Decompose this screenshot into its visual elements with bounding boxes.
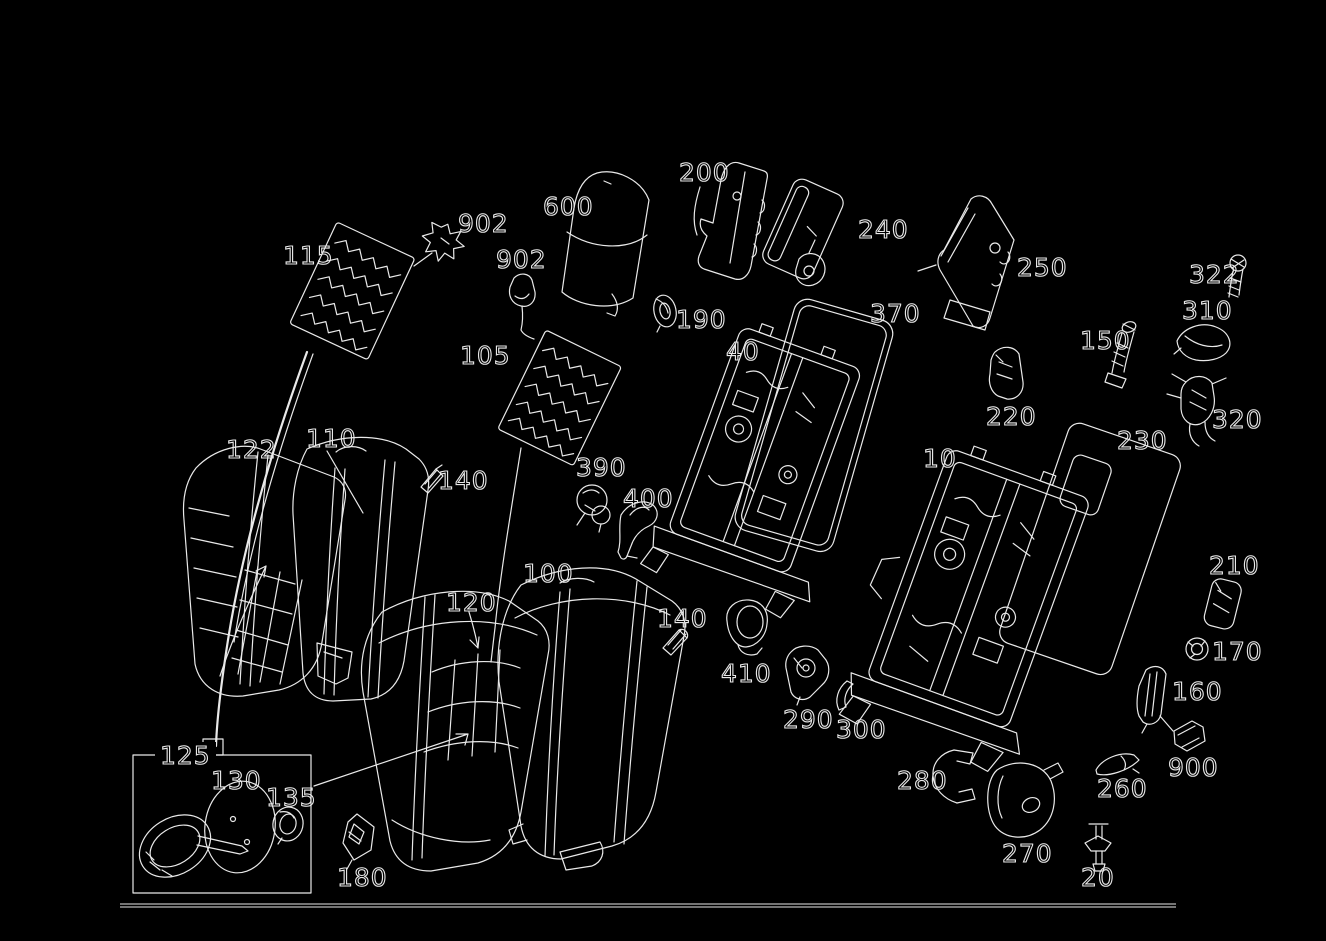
part-label-902-lower: 902 [496, 246, 547, 274]
part-label-240: 240 [858, 216, 909, 244]
part-label-40: 40 [726, 338, 760, 366]
part-label-902-upper: 902 [458, 210, 509, 238]
part-label-170: 170 [1212, 638, 1263, 666]
part-label-125: 125 [155, 742, 216, 770]
part-label-180: 180 [337, 864, 388, 892]
parts-diagram: 1159029026002002402503223101503201903704… [0, 0, 1326, 941]
part-label-322: 322 [1189, 261, 1240, 289]
part-label-210: 210 [1209, 552, 1260, 580]
part-label-400: 400 [623, 485, 674, 513]
part-label-200: 200 [679, 159, 730, 187]
part-label-260: 260 [1097, 775, 1148, 803]
part-label-220: 220 [986, 403, 1037, 431]
part-label-140-lower: 140 [657, 605, 708, 633]
part-label-120: 120 [446, 589, 497, 617]
part-label-160: 160 [1172, 678, 1223, 706]
part-label-600: 600 [543, 193, 594, 221]
part-label-410: 410 [721, 660, 772, 688]
part-label-250: 250 [1017, 254, 1068, 282]
part-label-370: 370 [870, 300, 921, 328]
part-label-320: 320 [1212, 406, 1263, 434]
part-label-300: 300 [836, 716, 887, 744]
part-label-310: 310 [1182, 297, 1233, 325]
part-label-130: 130 [211, 767, 262, 795]
part-label-135: 135 [266, 784, 317, 812]
part-label-115: 115 [283, 242, 334, 270]
part-label-122: 122 [226, 436, 277, 464]
part-label-390: 390 [576, 454, 627, 482]
label-layer: 1159029026002002402503223101503201903704… [0, 0, 1326, 941]
part-label-10: 10 [923, 445, 957, 473]
part-label-190: 190 [676, 306, 727, 334]
part-label-140-upper: 140 [438, 467, 489, 495]
part-label-290: 290 [783, 706, 834, 734]
part-label-110: 110 [306, 425, 357, 453]
part-label-150: 150 [1080, 327, 1131, 355]
part-label-105: 105 [460, 342, 511, 370]
part-label-900: 900 [1168, 754, 1219, 782]
part-label-100: 100 [523, 560, 574, 588]
part-label-230: 230 [1117, 427, 1168, 455]
part-label-270: 270 [1002, 840, 1053, 868]
part-label-20: 20 [1081, 864, 1115, 892]
part-label-280: 280 [897, 767, 948, 795]
